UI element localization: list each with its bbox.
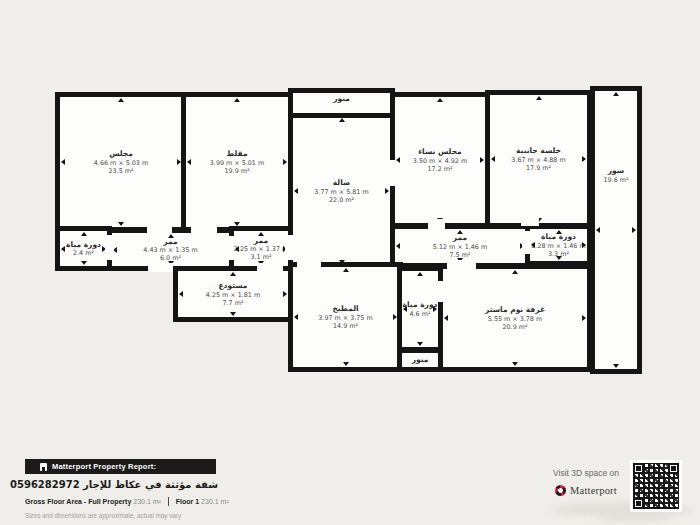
door-opening [147, 224, 172, 234]
dimension-arrow-icon [230, 312, 236, 316]
room-area: 7.7 m² [223, 299, 244, 307]
dimension-arrow-icon [258, 232, 264, 236]
door-opening [285, 235, 294, 260]
door-opening [428, 219, 445, 229]
room-majlis: مجلس4.66 m × 5.03 m23.5 m² [55, 92, 187, 232]
room-dimensions: 2.25 m × 1.37 m [234, 245, 288, 253]
room-sala: صالة3.77 m × 5.81 m22.0 m² [288, 112, 395, 270]
room-maglat: مقلط3.99 m × 5.01 m19.9 m² [181, 92, 293, 232]
room-area: 4.6 m² [410, 310, 431, 318]
dimension-arrow-icon [433, 306, 437, 312]
dimension-arrow-icon [437, 98, 443, 102]
room-name-label: سور [608, 166, 624, 175]
room-name-label: ممر [453, 233, 467, 242]
room-name-label: مجلس نساء [418, 147, 461, 156]
room-menawar-top: منور [288, 88, 395, 118]
dimension-arrow-icon [294, 188, 298, 194]
dimension-arrow-icon [343, 362, 349, 366]
dimension-arrow-icon [235, 246, 239, 252]
room-dimensions: 4.66 m × 5.03 m [94, 159, 148, 167]
room-area: 23.5 m² [108, 167, 133, 175]
room-majlis-nisa: مجلس نساء3.50 m × 4.92 m17.2 m² [390, 92, 490, 228]
door-opening [224, 236, 234, 260]
room-dimensions: 3.50 m × 4.92 m [413, 157, 467, 165]
door-opening [521, 216, 539, 226]
room-area: 22.0 m² [329, 196, 354, 204]
dimension-arrow-icon [613, 364, 619, 368]
dimension-arrow-icon [118, 98, 124, 102]
door-opening [257, 263, 283, 272]
report-bar-label: Matterport Property Report: [52, 462, 156, 471]
report-header-bar: Matterport Property Report: [25, 459, 216, 474]
matterport-wordmark: Matterport [570, 485, 617, 496]
dimension-arrow-icon [536, 96, 542, 100]
room-name-label: ممر [163, 237, 177, 246]
gfa-value: 230.1 m² [133, 498, 161, 505]
room-menawar-bottom: منور [397, 348, 443, 372]
gfa-label: Gross Floor Area - Full Property [25, 498, 131, 505]
listing-title: شقة مؤثثة في عكاظ للإجار 0596282972 [25, 479, 218, 490]
dimension-arrow-icon [61, 246, 65, 252]
qr-finder-icon [633, 498, 644, 509]
door-opening [522, 231, 531, 254]
room-dimensions: 3.99 m × 5.01 m [210, 159, 264, 167]
dimension-arrow-icon [385, 188, 389, 194]
dimension-arrow-icon [294, 314, 298, 320]
floor-area-summary: Gross Floor Area - Full Property 230.1 m… [25, 497, 225, 506]
dimension-arrow-icon [396, 157, 400, 163]
room-area: 19.6 m² [603, 176, 628, 184]
room-dimensions: 5.55 m × 3.78 m [488, 315, 542, 323]
disclaimer-text: Sizes and dimensions are approximate, ac… [25, 512, 225, 519]
room-dimensions: 2.28 m × 1.46 m [531, 242, 585, 250]
dimension-arrow-icon [339, 118, 345, 122]
dimension-arrow-icon [556, 230, 562, 234]
room-name-label: منور [333, 94, 350, 103]
room-master-bedroom: غرفة نوم ماستر5.55 m × 3.78 m20.9 m² [438, 264, 592, 372]
room-name-label: المطبخ [332, 304, 358, 313]
room-name-label: جلسة جانبية [516, 146, 561, 155]
dimension-arrow-icon [531, 242, 535, 248]
dimension-arrow-icon [596, 227, 600, 233]
dimension-arrow-icon [556, 256, 562, 260]
room-area: 14.9 m² [333, 322, 358, 330]
dimension-arrow-icon [582, 315, 586, 321]
door-opening [387, 160, 396, 186]
dimension-arrow-icon [417, 342, 423, 346]
dimension-arrow-icon [417, 272, 423, 276]
room-area: 3.1 m² [251, 253, 272, 261]
room-area: 19.9 m² [224, 167, 249, 175]
dimension-arrow-icon [444, 315, 448, 321]
dimension-arrow-icon [168, 234, 174, 238]
dimension-arrow-icon [81, 261, 87, 265]
dimension-arrow-icon [512, 270, 518, 274]
dimension-arrow-icon [234, 98, 240, 102]
room-dimensions: 3.97 m × 3.75 m [318, 314, 372, 322]
dimension-arrow-icon [613, 92, 619, 96]
room-name-label: مقلط [226, 149, 247, 158]
room-storage: مستودع4.25 m × 1.81 m7.7 m² [173, 266, 293, 322]
room-soor: سور19.6 m² [590, 86, 642, 374]
room-bathroom-33: دورة مياة2.28 m × 1.46 m3.3 m² [525, 224, 592, 266]
dimension-arrow-icon [480, 157, 484, 163]
room-name-label: دورة مياة [66, 240, 101, 249]
room-area: 17.2 m² [427, 165, 452, 173]
floor-label: Floor 1 [176, 498, 199, 505]
room-area: 20.9 m² [502, 323, 527, 331]
dimension-arrow-icon [81, 232, 87, 236]
dimension-arrow-icon [457, 230, 463, 234]
door-opening [297, 259, 321, 268]
dimension-arrow-icon [403, 306, 407, 312]
dimension-arrow-icon [582, 156, 586, 162]
dimension-arrow-icon [632, 227, 636, 233]
dimension-arrow-icon [283, 159, 287, 165]
room-dimensions: 4.43 m × 1.35 m [143, 246, 197, 254]
floor-value: 230.1 m² [201, 498, 229, 505]
floor-plan: مجلس4.66 m × 5.03 m23.5 m²مقلط3.99 m × 5… [0, 0, 700, 525]
room-dimensions: 3.77 m × 5.81 m [314, 188, 368, 196]
dimension-arrow-icon [343, 268, 349, 272]
qr-pattern [633, 463, 679, 509]
building-icon [40, 463, 47, 471]
room-name-label: صالة [333, 178, 350, 187]
dimension-arrow-icon [61, 159, 65, 165]
separator [168, 497, 169, 506]
dimension-arrow-icon [230, 272, 236, 276]
property-report-footer: Matterport Property Report: شقة مؤثثة في… [25, 459, 225, 519]
matterport-logo-icon [555, 485, 566, 496]
dimension-arrow-icon [187, 159, 191, 165]
room-bathroom-46: دورة مياة4.6 m² [397, 266, 443, 352]
shadow-blob [598, 513, 673, 521]
dimension-arrow-icon [396, 243, 400, 249]
dimension-arrow-icon [491, 156, 495, 162]
matterport-brand: Matterport [555, 485, 617, 496]
dimension-arrow-icon [118, 222, 124, 226]
room-area: 2.4 m² [73, 249, 94, 257]
dimension-arrow-icon [283, 291, 287, 297]
room-bathroom-24: دورة مياة2.4 m² [55, 226, 112, 271]
qr-code [630, 460, 682, 512]
dimension-arrow-icon [582, 242, 586, 248]
room-area: 17.9 m² [526, 164, 551, 172]
room-dimensions: 5.12 m × 1.46 m [433, 243, 487, 251]
visit-3d-label: Visit 3D space on [553, 468, 625, 478]
dimension-arrow-icon [512, 362, 518, 366]
room-name-label: منور [412, 355, 429, 364]
room-name-label: مستودع [218, 281, 247, 290]
room-dimensions: 4.25 m × 1.81 m [206, 291, 260, 299]
door-opening [105, 235, 114, 260]
room-dimensions: 3.67 m × 4.88 m [511, 156, 565, 164]
door-opening [148, 263, 173, 272]
qr-finder-icon [668, 463, 679, 474]
door-opening [191, 224, 217, 234]
room-name-label: مجلس [109, 149, 133, 158]
door-opening [447, 260, 476, 269]
room-jalsa-janbia: جلسة جانبية3.67 m × 4.88 m17.9 m² [485, 90, 592, 228]
door-opening [437, 281, 445, 302]
room-name-label: غرفة نوم ماستر [485, 305, 545, 314]
qr-finder-icon [633, 463, 644, 474]
dimension-arrow-icon [179, 291, 183, 297]
room-name-label: ممر [254, 236, 268, 245]
room-kitchen: المطبخ3.97 m × 3.75 m14.9 m² [288, 262, 403, 372]
